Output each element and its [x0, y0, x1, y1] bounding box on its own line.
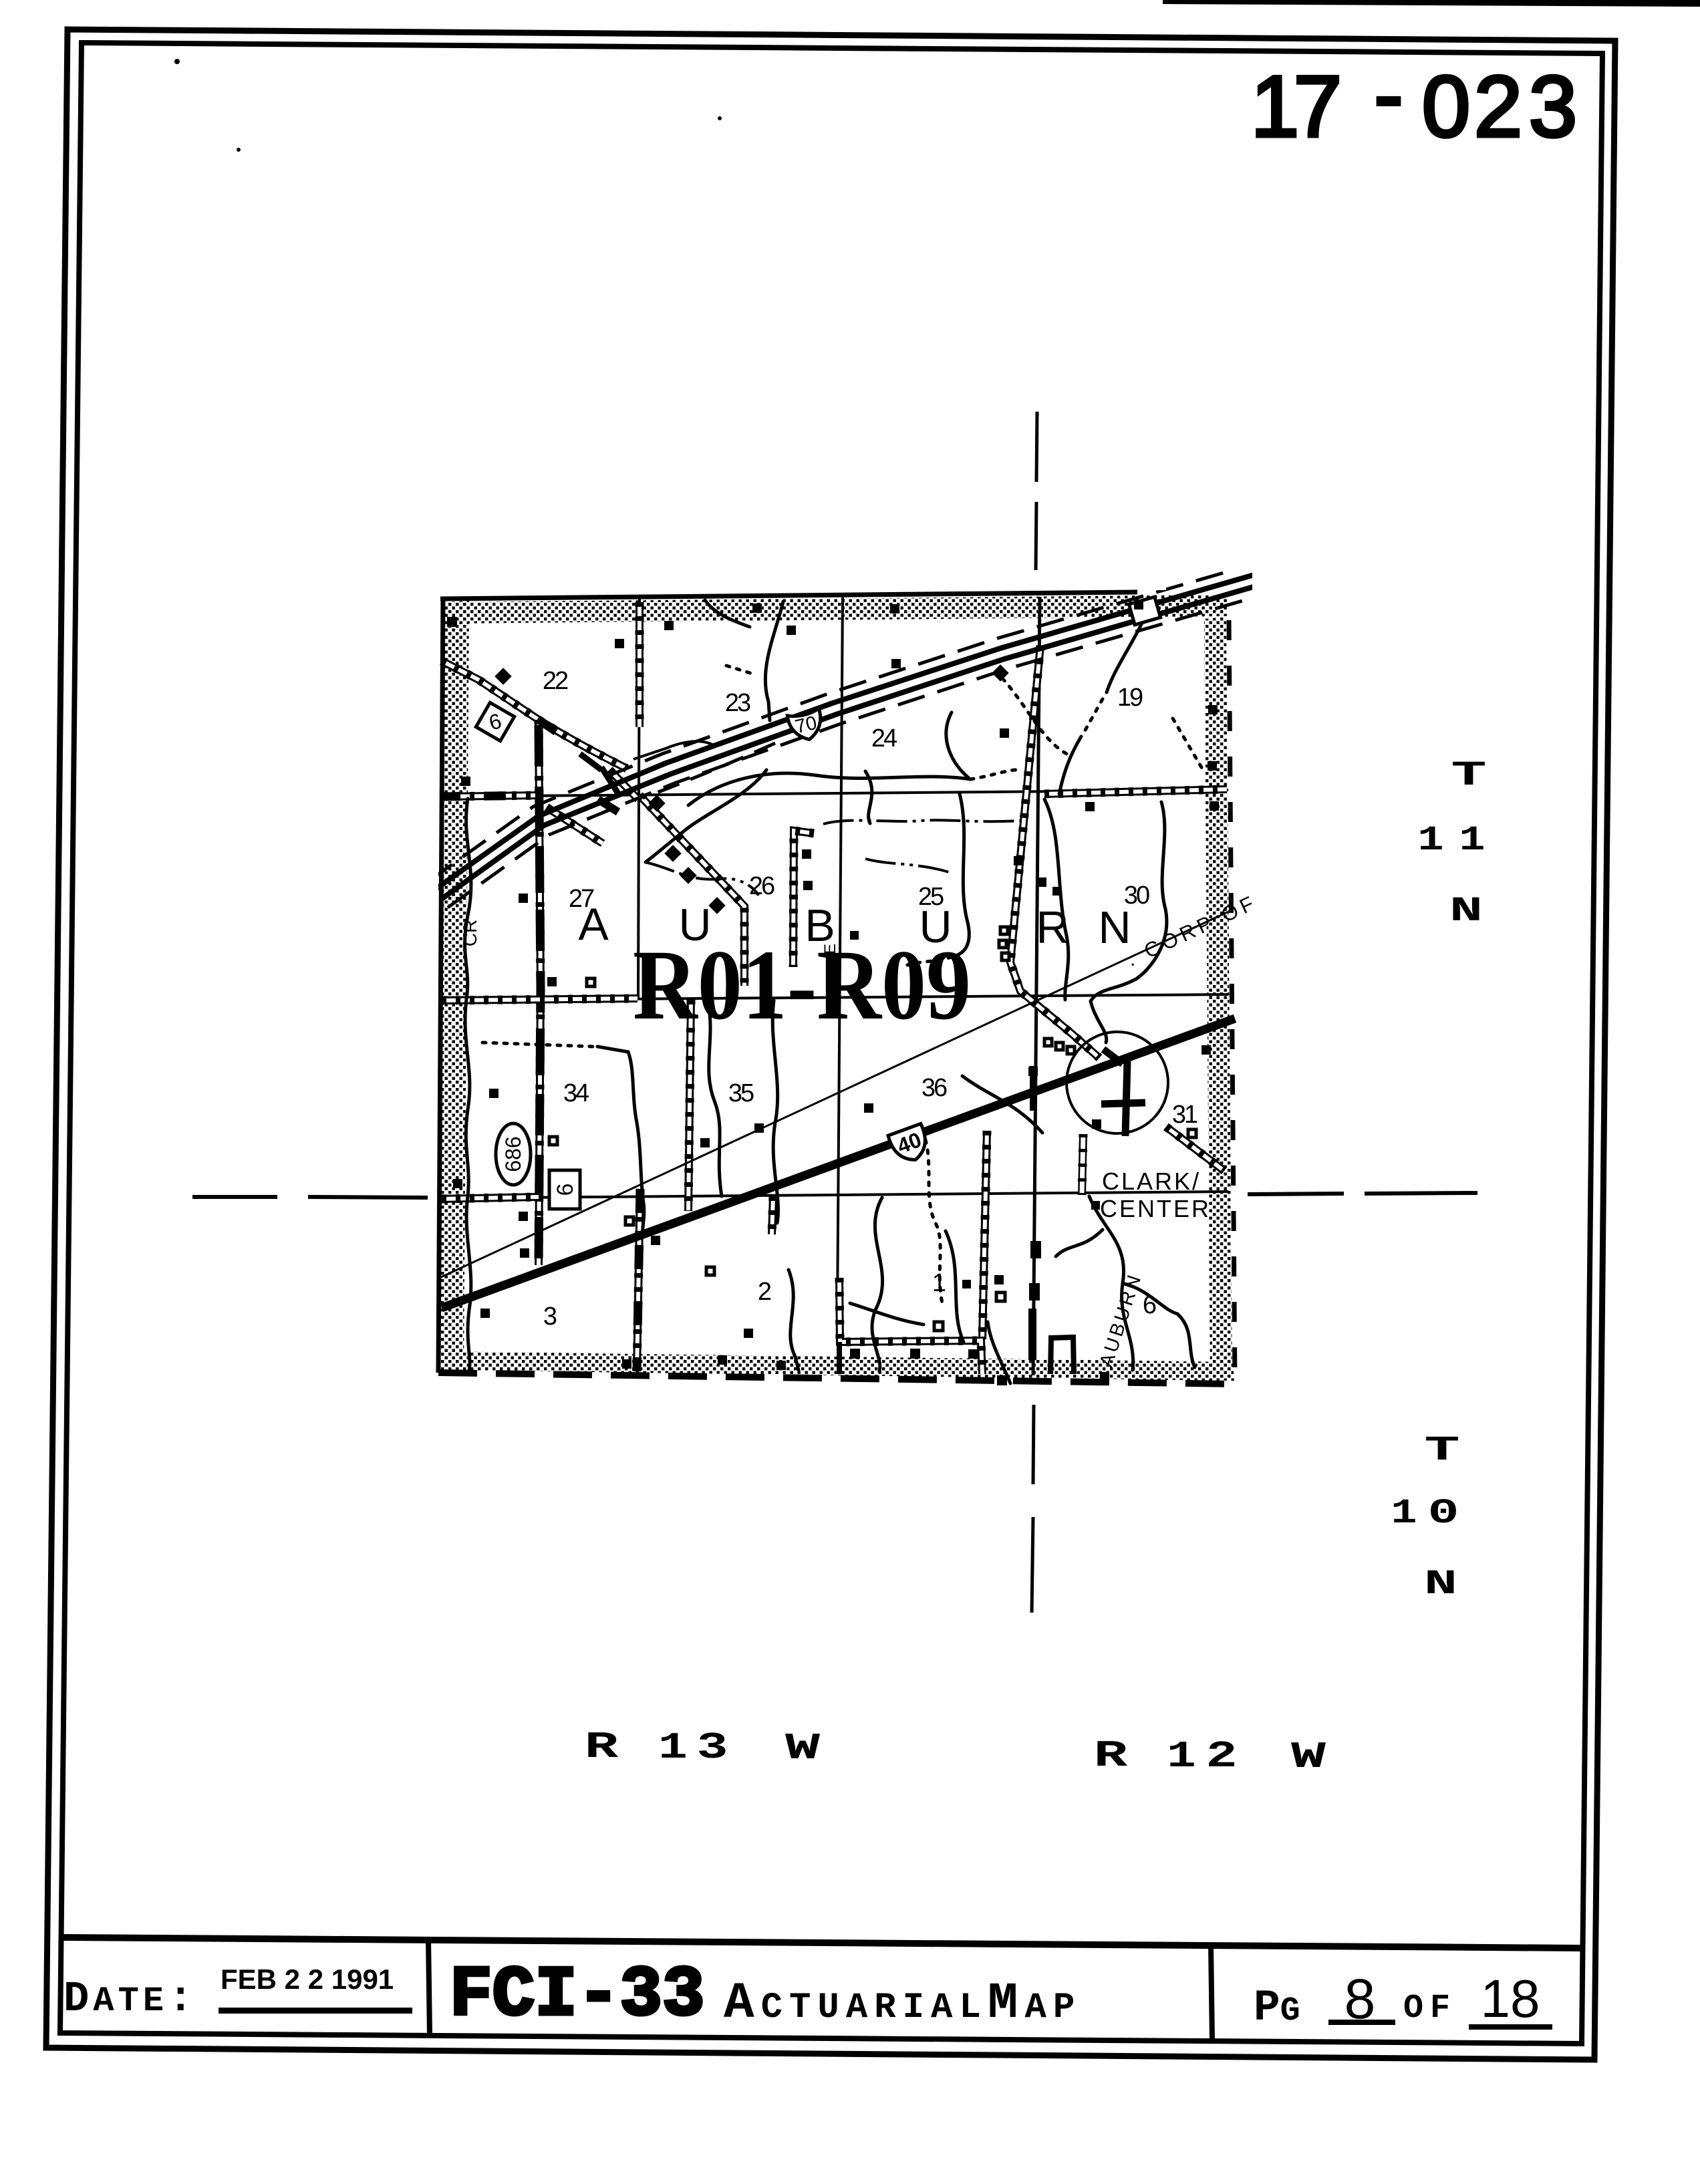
svg-text:3: 3 — [543, 1303, 557, 1331]
svg-text:3: 3 — [1529, 57, 1577, 155]
svg-text:2: 2 — [758, 1278, 771, 1306]
svg-text:1: 1 — [1391, 1494, 1417, 1533]
svg-text:31: 31 — [1172, 1101, 1197, 1129]
svg-text:26: 26 — [749, 872, 774, 900]
svg-text:1: 1 — [1459, 821, 1485, 860]
svg-text:W: W — [785, 1727, 820, 1770]
svg-text:2: 2 — [1474, 57, 1522, 155]
svg-text:22: 22 — [543, 667, 568, 695]
svg-text:0: 0 — [1422, 57, 1470, 155]
svg-text:686: 686 — [501, 1136, 525, 1172]
svg-text:-: - — [1374, 45, 1403, 143]
svg-text:23: 23 — [725, 689, 750, 717]
svg-text:FEB 2 2 1991: FEB 2 2 1991 — [221, 1963, 394, 1995]
svg-text:R: R — [585, 1727, 619, 1769]
svg-text:T: T — [1424, 1431, 1459, 1470]
svg-text:34: 34 — [563, 1079, 589, 1107]
svg-text:19: 19 — [1117, 684, 1143, 712]
svg-text:W: W — [1291, 1736, 1326, 1778]
svg-text:7: 7 — [1294, 57, 1342, 155]
svg-text:E: E — [821, 944, 839, 954]
svg-text:1: 1 — [658, 1726, 688, 1769]
svg-text:1: 1 — [1167, 1735, 1196, 1778]
svg-text:R: R — [1094, 1736, 1128, 1778]
svg-text:0: 0 — [1428, 1494, 1459, 1533]
svg-text:1: 1 — [1417, 821, 1443, 860]
svg-text:OF: OF — [1403, 1990, 1457, 2028]
svg-text:35: 35 — [728, 1079, 754, 1107]
svg-text:24: 24 — [871, 724, 897, 753]
svg-text:T: T — [1451, 756, 1486, 795]
svg-text:1: 1 — [1251, 57, 1299, 155]
svg-text:6: 6 — [1143, 1291, 1156, 1319]
svg-text:CLARK/: CLARK/ — [1102, 1168, 1201, 1195]
svg-text:DATE:: DATE: — [63, 1975, 197, 2024]
svg-text:2: 2 — [1206, 1736, 1237, 1778]
svg-text:18: 18 — [1481, 1969, 1540, 2028]
svg-text:CR: CR — [460, 920, 480, 946]
svg-text:N: N — [1424, 1564, 1457, 1604]
svg-text:N: N — [1449, 892, 1483, 931]
svg-text:R01-R09: R01-R09 — [633, 930, 971, 1041]
svg-text:FCI-33: FCI-33 — [450, 1955, 705, 2036]
svg-text:3: 3 — [696, 1727, 728, 1769]
svg-text:6: 6 — [553, 1184, 578, 1196]
svg-text:N: N — [1098, 902, 1131, 953]
svg-text:1: 1 — [932, 1269, 946, 1297]
svg-text:A: A — [578, 899, 609, 950]
svg-text:CENTER: CENTER — [1100, 1195, 1211, 1222]
svg-text:36: 36 — [922, 1074, 947, 1102]
svg-text:R: R — [1036, 902, 1069, 953]
